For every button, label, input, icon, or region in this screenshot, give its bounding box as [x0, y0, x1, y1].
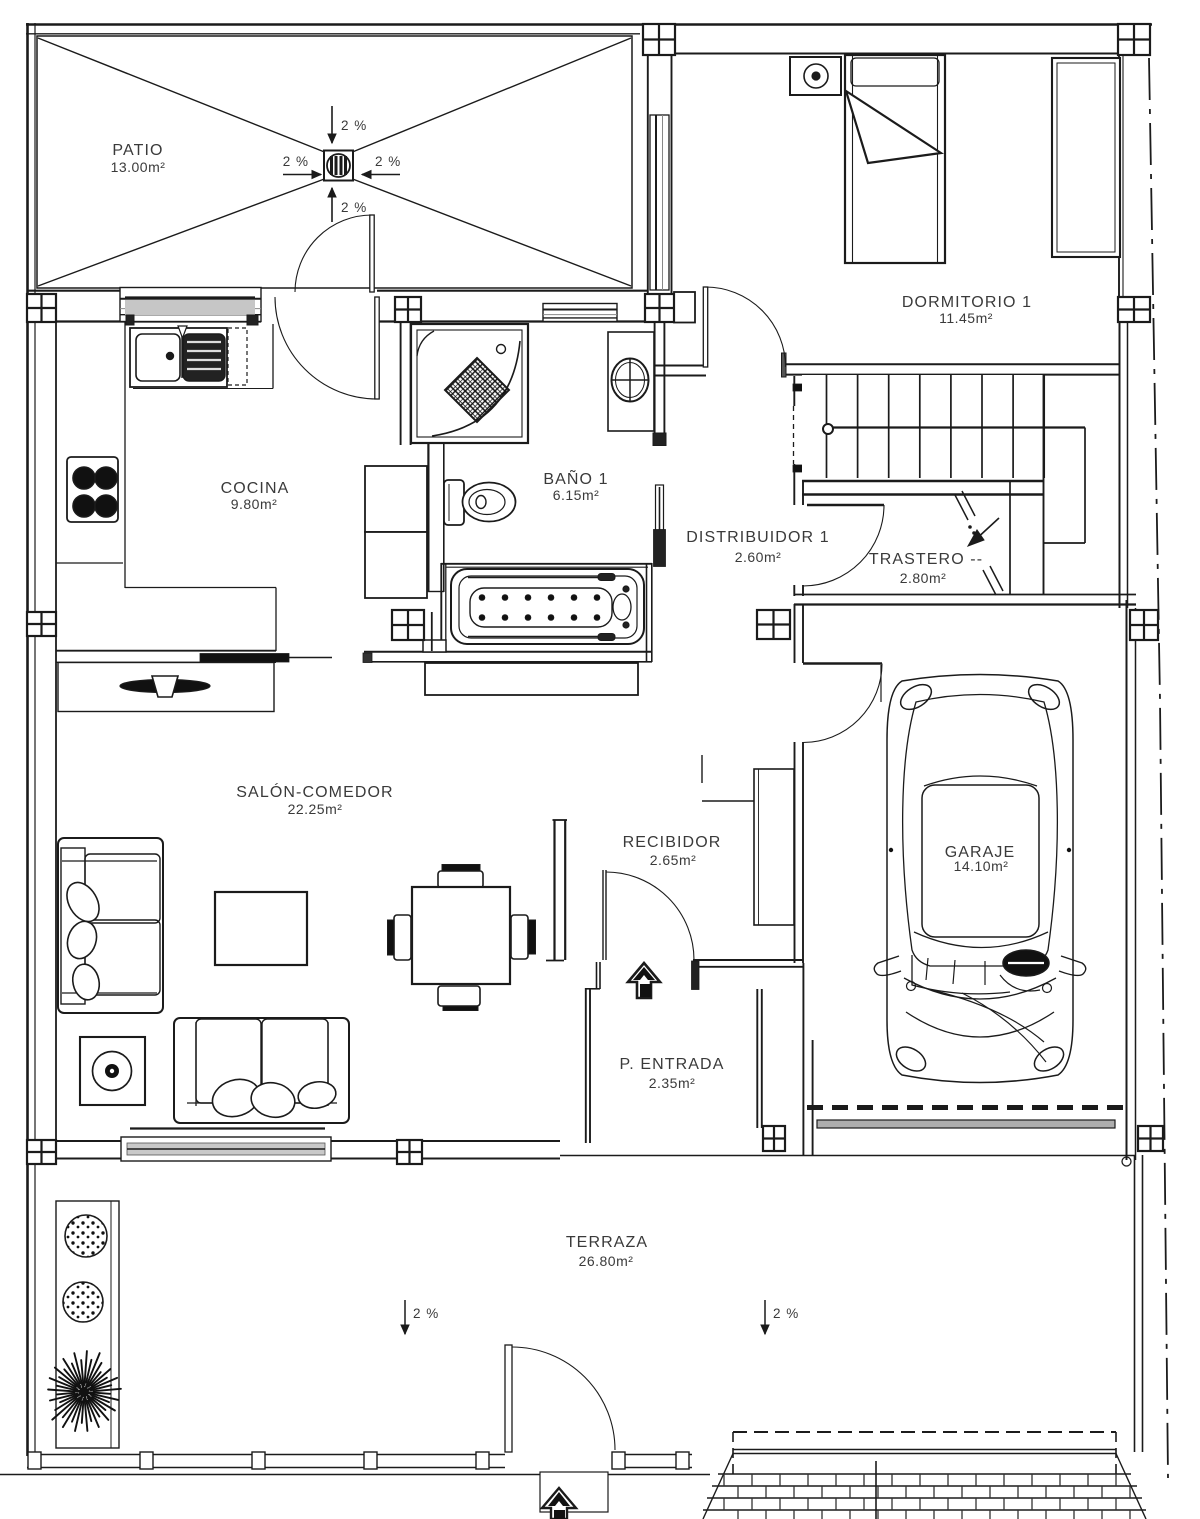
- svg-text:9.80m²: 9.80m²: [231, 496, 278, 512]
- svg-text:TERRAZA: TERRAZA: [566, 1234, 648, 1251]
- svg-text:2.65m²: 2.65m²: [650, 852, 697, 868]
- svg-text:PATIO: PATIO: [112, 142, 163, 159]
- svg-text:2 %: 2 %: [283, 154, 309, 169]
- svg-text:SALÓN-COMEDOR: SALÓN-COMEDOR: [236, 782, 393, 801]
- svg-text:COCINA: COCINA: [221, 480, 290, 497]
- svg-text:TRASTERO --: TRASTERO --: [869, 551, 983, 568]
- svg-text:RECIBIDOR: RECIBIDOR: [623, 834, 722, 851]
- svg-text:2 %: 2 %: [341, 200, 367, 215]
- svg-text:2 %: 2 %: [341, 118, 367, 133]
- svg-text:6.15m²: 6.15m²: [553, 487, 600, 503]
- svg-text:2.80m²: 2.80m²: [900, 570, 947, 586]
- svg-text:14.10m²: 14.10m²: [954, 858, 1009, 874]
- svg-text:DISTRIBUIDOR 1: DISTRIBUIDOR 1: [686, 529, 829, 546]
- svg-text:DORMITORIO 1: DORMITORIO 1: [902, 294, 1032, 311]
- svg-text:11.45m²: 11.45m²: [939, 310, 993, 326]
- svg-text:BAÑO 1: BAÑO 1: [543, 468, 608, 488]
- svg-text:2 %: 2 %: [413, 1306, 439, 1321]
- svg-text:2.60m²: 2.60m²: [735, 549, 782, 565]
- svg-text:13.00m²: 13.00m²: [111, 159, 166, 175]
- svg-text:26.80m²: 26.80m²: [579, 1253, 634, 1269]
- svg-text:2.35m²: 2.35m²: [649, 1075, 696, 1091]
- svg-text:P. ENTRADA: P. ENTRADA: [620, 1056, 725, 1073]
- svg-text:2 %: 2 %: [375, 154, 401, 169]
- svg-text:2 %: 2 %: [773, 1306, 799, 1321]
- svg-text:22.25m²: 22.25m²: [288, 801, 343, 817]
